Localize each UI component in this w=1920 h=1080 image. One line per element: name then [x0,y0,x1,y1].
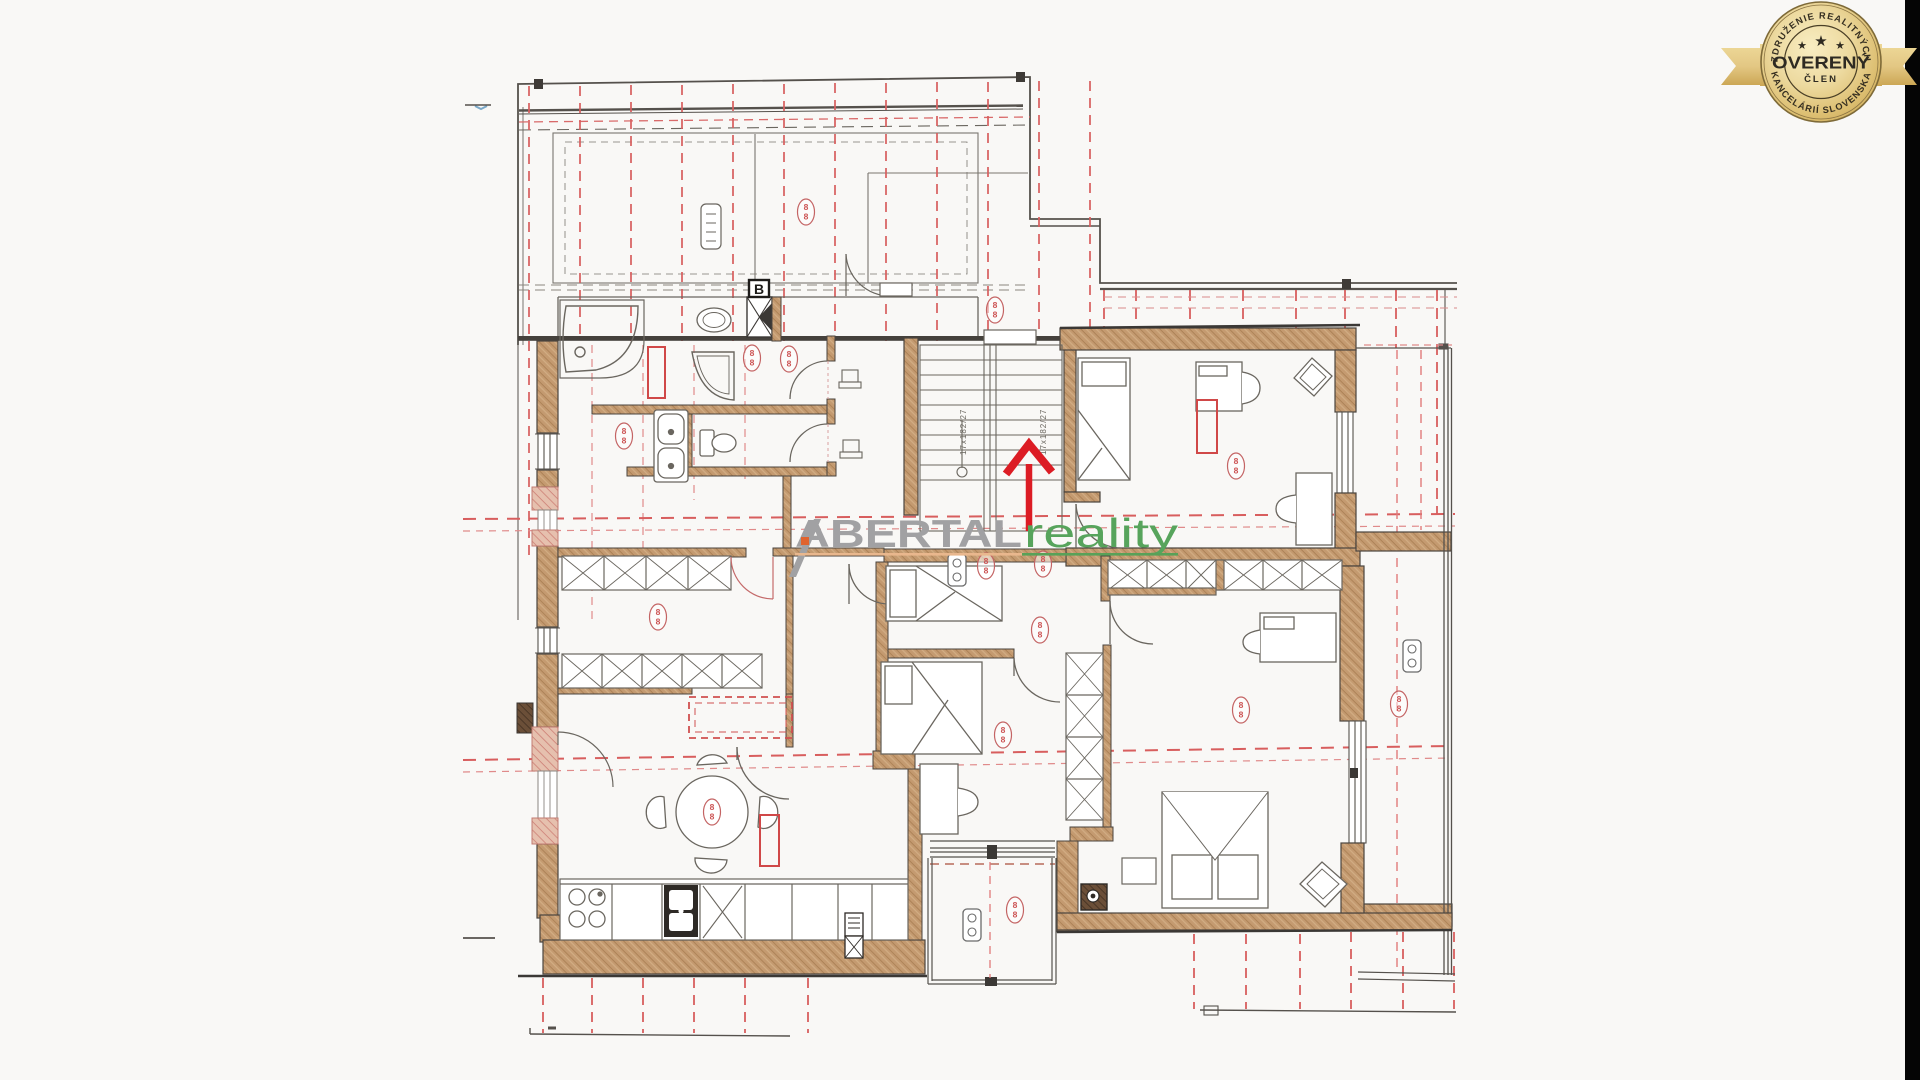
svg-text:★: ★ [1835,40,1845,52]
svg-text:★: ★ [1814,33,1827,50]
svg-text:B: B [754,281,764,297]
svg-text:ABERTAL: ABERTAL [795,513,1022,556]
svg-text:17x182/27: 17x182/27 [959,409,968,455]
svg-text:OVERENÝ: OVERENÝ [1772,52,1870,73]
svg-text:★: ★ [1797,40,1807,52]
svg-text:reality: reality [1024,510,1179,556]
svg-text:17x182/27: 17x182/27 [1039,409,1048,455]
svg-text:ČLEN: ČLEN [1804,73,1838,85]
